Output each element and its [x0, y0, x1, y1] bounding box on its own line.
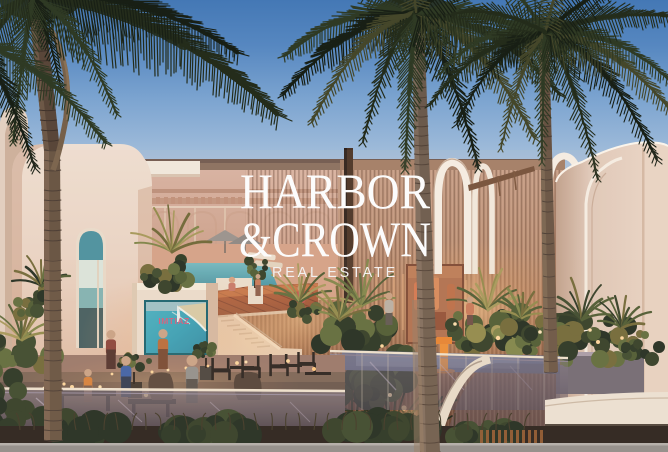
svg-text:REAL ESTATE: REAL ESTATE	[272, 264, 398, 281]
svg-text:&CROWN: &CROWN	[239, 211, 431, 267]
